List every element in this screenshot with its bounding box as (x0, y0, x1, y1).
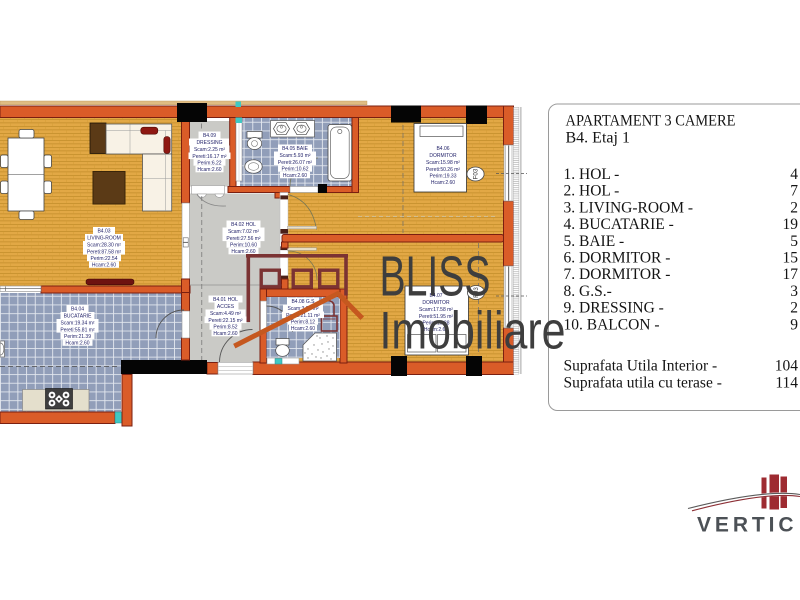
svg-text:B4. Etaj 1: B4. Etaj 1 (566, 130, 630, 147)
svg-text:Pereti:87.58 m²: Pereti:87.58 m² (87, 249, 122, 255)
svg-text:Scam:4.49 m²: Scam:4.49 m² (210, 311, 241, 317)
svg-text:ACCES: ACCES (217, 304, 235, 310)
svg-text:Perim:19.33: Perim:19.33 (430, 174, 457, 180)
svg-text:B4.06: B4.06 (436, 146, 449, 152)
svg-text:Suprafata Utila Interior -: Suprafata Utila Interior - (564, 358, 718, 375)
svg-text:9: 9 (790, 316, 798, 333)
svg-text:Pereti:16.17 m²: Pereti:16.17 m² (192, 154, 227, 160)
svg-text:F03: F03 (473, 168, 480, 179)
svg-text:Scam:7.02 m²: Scam:7.02 m² (228, 229, 259, 235)
svg-text:Perim:10.60: Perim:10.60 (230, 243, 257, 249)
svg-text:15: 15 (783, 250, 799, 267)
svg-text:Hcam:2.60: Hcam:2.60 (65, 341, 89, 347)
svg-text:4. BUCATARIE -: 4. BUCATARIE - (564, 216, 674, 233)
svg-text:B4.05 BAIE: B4.05 BAIE (282, 146, 309, 152)
svg-text:Perim:10.62: Perim:10.62 (282, 167, 309, 173)
svg-text:10. BALCON -: 10. BALCON - (564, 316, 660, 333)
svg-text:Hcam:2.60: Hcam:2.60 (291, 326, 315, 332)
svg-text:B4.03: B4.03 (97, 229, 110, 235)
svg-text:2: 2 (790, 300, 798, 317)
svg-text:8. G.S.-: 8. G.S.- (564, 283, 612, 300)
svg-text:Imobiliare: Imobiliare (380, 302, 566, 361)
svg-text:DORMITOR: DORMITOR (429, 153, 457, 159)
svg-text:Scam:15.98 m²: Scam:15.98 m² (426, 160, 460, 166)
svg-text:Perim:6.22: Perim:6.22 (197, 161, 221, 167)
svg-text:B4.02 HOL: B4.02 HOL (231, 222, 256, 228)
svg-text:Hcam:2.60: Hcam:2.60 (197, 167, 221, 173)
svg-text:DRESSING: DRESSING (196, 140, 222, 146)
svg-text:Hcam:2.60: Hcam:2.60 (213, 331, 237, 337)
svg-text:1. HOL -: 1. HOL - (564, 166, 620, 183)
svg-text:Pereti:50.26 m²: Pereti:50.26 m² (426, 167, 461, 173)
svg-text:Scam:28.30 m²: Scam:28.30 m² (87, 243, 121, 249)
svg-text:B4.04: B4.04 (71, 307, 84, 313)
svg-text:Suprafata utila cu terase -: Suprafata utila cu terase - (564, 375, 722, 392)
svg-text:Hcam:2.60: Hcam:2.60 (283, 173, 307, 179)
svg-text:BLISS: BLISS (380, 245, 491, 309)
svg-text:Pereti:55.81 m²: Pereti:55.81 m² (60, 327, 95, 333)
svg-text:19: 19 (783, 216, 799, 233)
svg-text:104: 104 (775, 358, 799, 375)
svg-text:B4.09: B4.09 (203, 133, 216, 139)
svg-text:3. LIVING-ROOM -: 3. LIVING-ROOM - (564, 199, 694, 216)
svg-text:VERTIC: VERTIC (697, 514, 797, 537)
svg-text:Perim:21.39: Perim:21.39 (64, 334, 91, 340)
svg-text:17: 17 (783, 266, 799, 283)
svg-text:LIVING-ROOM: LIVING-ROOM (87, 236, 121, 242)
svg-text:APARTAMENT 3 CAMERE: APARTAMENT 3 CAMERE (566, 113, 736, 130)
svg-text:Scam:5.93 m²: Scam:5.93 m² (279, 153, 310, 159)
svg-text:Perim:22.54: Perim:22.54 (91, 256, 118, 262)
svg-text:2: 2 (790, 199, 798, 216)
svg-text:9. DRESSING -: 9. DRESSING - (564, 300, 664, 317)
svg-text:7: 7 (790, 183, 798, 200)
svg-text:Pereti:27.56 m²: Pereti:27.56 m² (226, 236, 261, 242)
svg-text:Hcam:2.60: Hcam:2.60 (92, 263, 116, 269)
svg-text:2. HOL -: 2. HOL - (564, 183, 620, 200)
svg-text:Scam:2.25 m²: Scam:2.25 m² (194, 147, 225, 153)
svg-text:5. BAIE -: 5. BAIE - (564, 233, 625, 250)
svg-text:Scam:19.34 m²: Scam:19.34 m² (61, 321, 95, 327)
svg-text:Pereti:22.15 m²: Pereti:22.15 m² (208, 318, 243, 324)
svg-text:5: 5 (790, 233, 798, 250)
svg-text:Perim:8.52: Perim:8.52 (213, 325, 237, 331)
svg-text:Perim:8.12: Perim:8.12 (291, 320, 315, 326)
svg-text:Hcam:2.60: Hcam:2.60 (431, 180, 455, 186)
svg-text:3: 3 (790, 283, 798, 300)
svg-text:4: 4 (790, 166, 798, 183)
svg-text:7. DORMITOR -: 7. DORMITOR - (564, 266, 671, 283)
svg-text:6. DORMITOR -: 6. DORMITOR - (564, 250, 671, 267)
svg-text:B4.01 HOL: B4.01 HOL (213, 297, 238, 303)
svg-text:Pereti:26.07 m²: Pereti:26.07 m² (278, 160, 313, 166)
svg-text:BUCATARIE: BUCATARIE (64, 314, 93, 320)
svg-text:114: 114 (775, 375, 798, 392)
